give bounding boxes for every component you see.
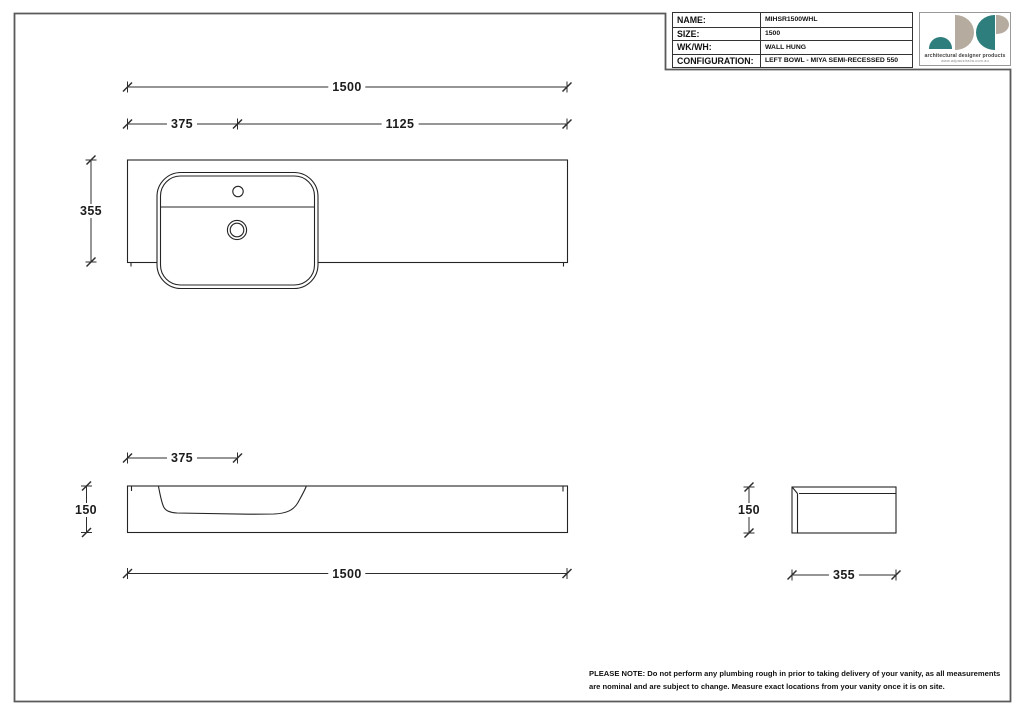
dim-side-depth: 355 xyxy=(829,568,859,582)
front-elevation xyxy=(128,486,568,533)
dim-front-height: 150 xyxy=(71,503,101,517)
title-block-label-size: SIZE: xyxy=(673,27,760,41)
dim-plan-bowl-centre: 375 xyxy=(167,117,197,131)
drawing-canvas xyxy=(0,0,1024,715)
title-block-label-wkwh: WK/WH: xyxy=(673,40,760,54)
title-block-value-size: 1500 xyxy=(760,27,912,41)
side-elevation xyxy=(792,487,896,533)
dim-plan-depth: 355 xyxy=(76,204,106,218)
front-counter xyxy=(128,486,568,533)
logo-shape-d-teal xyxy=(976,15,995,50)
logo-website: www.adpaustralia.com.au xyxy=(941,59,989,63)
title-block-label-configuration: CONFIGURATION: xyxy=(673,54,760,68)
plan-basin-outer xyxy=(157,173,318,289)
logo-shape-d-beige xyxy=(955,15,974,50)
dim-side-height: 150 xyxy=(734,503,764,517)
page-border xyxy=(15,14,1011,702)
title-block-value-configuration: LEFT BOWL - MIYA SEMI-RECESSED 550 xyxy=(760,54,912,68)
dim-plan-overall-width: 1500 xyxy=(328,80,365,94)
logo-shape-p-bowl xyxy=(996,15,1009,34)
dim-front-bowl-offset: 375 xyxy=(167,451,197,465)
dim-plan-remainder: 1125 xyxy=(382,117,419,131)
dim-front-overall-width: 1500 xyxy=(328,567,365,581)
please-note-text: PLEASE NOTE: Do not perform any plumbing… xyxy=(589,667,1005,694)
drawing-sheet: 1500 375 1125 355 375 150 1500 150 355 N… xyxy=(0,0,1024,715)
title-block-value-wkwh: WALL HUNG xyxy=(760,40,912,54)
adp-logo-icon xyxy=(922,14,1008,52)
adp-logo: architectural designer products www.adpa… xyxy=(919,12,1011,66)
title-block-label-name: NAME: xyxy=(673,13,760,27)
title-block-value-name: MIHSR1500WHL xyxy=(760,13,912,27)
plan-view xyxy=(128,160,568,289)
title-block: NAME: MIHSR1500WHL SIZE: 1500 WK/WH: WAL… xyxy=(672,12,913,68)
logo-shape-a-dome xyxy=(929,37,952,49)
